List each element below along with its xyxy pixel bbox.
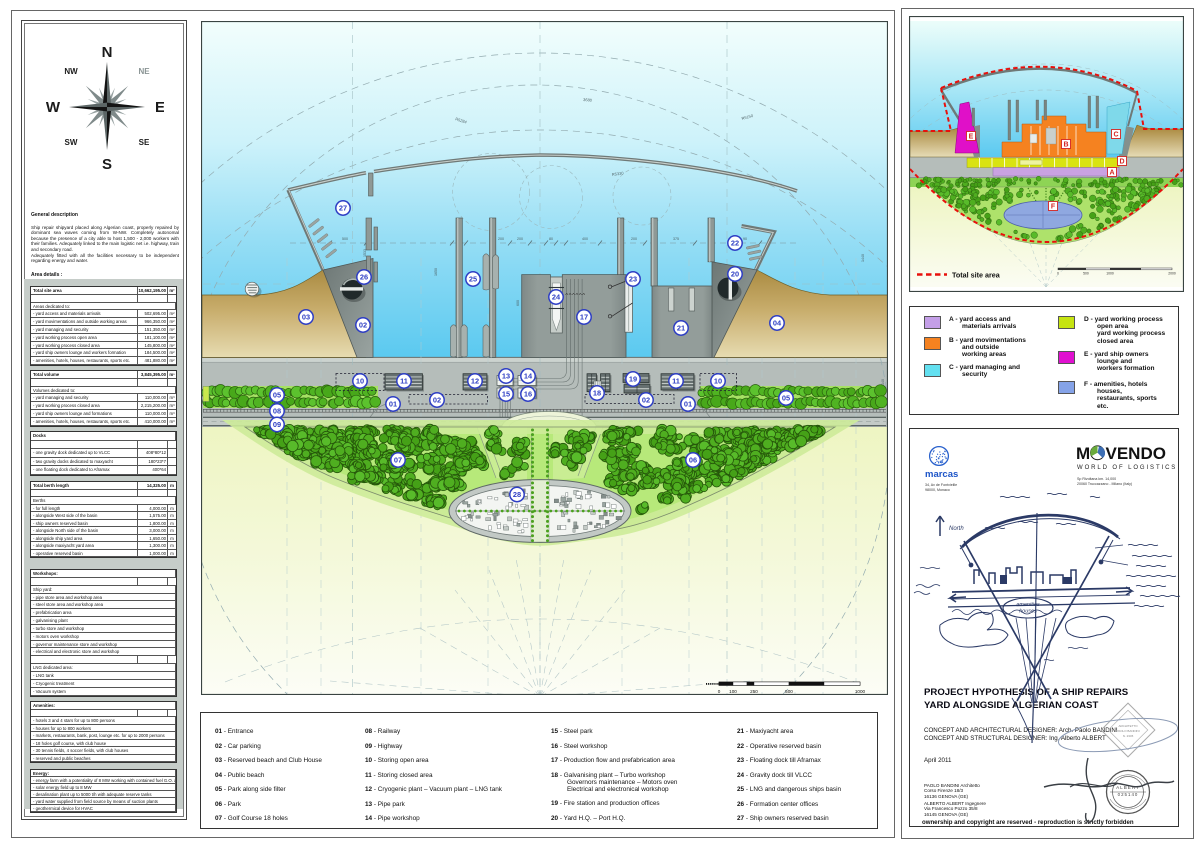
- svg-text:NW: NW: [64, 67, 78, 76]
- svg-text:amenities: amenities: [1016, 602, 1040, 608]
- svg-text:02: 02: [642, 396, 650, 405]
- svg-text:375: 375: [673, 237, 679, 241]
- svg-text:26: 26: [360, 273, 368, 282]
- svg-text:S: S: [102, 156, 112, 171]
- svg-text:1000: 1000: [1106, 272, 1114, 276]
- svg-text:1000: 1000: [855, 689, 866, 694]
- svg-text:24: 24: [552, 293, 561, 302]
- svg-text:3680: 3680: [583, 97, 593, 103]
- svg-text:23: 23: [629, 275, 637, 284]
- svg-text:B: B: [1063, 142, 1068, 149]
- svg-text:E: E: [155, 99, 164, 116]
- svg-text:06: 06: [689, 456, 697, 465]
- svg-text:10: 10: [356, 377, 364, 386]
- svg-text:28: 28: [513, 490, 521, 499]
- svg-text:07: 07: [394, 456, 402, 465]
- svg-text:025140: 025140: [1118, 792, 1139, 797]
- svg-text:04: 04: [773, 319, 782, 328]
- svg-text:D: D: [1119, 159, 1124, 166]
- svg-text:N: N: [102, 44, 113, 61]
- svg-text:1650: 1650: [434, 268, 438, 276]
- svg-text:200: 200: [631, 237, 637, 241]
- svg-text:0: 0: [718, 689, 721, 694]
- svg-text:1440: 1440: [861, 254, 865, 262]
- svg-text:10: 10: [714, 377, 722, 386]
- svg-text:Total site area: Total site area: [952, 271, 1001, 280]
- svg-text:W: W: [46, 99, 61, 116]
- svg-text:05: 05: [273, 391, 281, 400]
- svg-text:16: 16: [524, 390, 532, 399]
- svg-text:200: 200: [517, 237, 523, 241]
- svg-text:22: 22: [731, 239, 739, 248]
- svg-text:C: C: [1113, 132, 1118, 139]
- svg-text:11: 11: [672, 377, 680, 386]
- svg-text:F: F: [1051, 204, 1056, 211]
- svg-text:08: 08: [273, 407, 281, 416]
- svg-text:400: 400: [582, 237, 588, 241]
- svg-text:A: A: [1109, 170, 1114, 177]
- svg-text:80: 80: [549, 237, 553, 241]
- svg-text:12: 12: [471, 377, 479, 386]
- svg-text:18: 18: [593, 389, 601, 398]
- svg-text:01: 01: [684, 400, 692, 409]
- svg-text:0: 0: [1057, 272, 1059, 276]
- svg-text:houses: houses: [1019, 609, 1037, 615]
- svg-text:11: 11: [400, 377, 408, 386]
- svg-text:09: 09: [273, 420, 281, 429]
- svg-text:North: North: [949, 526, 964, 532]
- svg-text:19: 19: [629, 375, 637, 384]
- svg-text:600: 600: [516, 300, 520, 306]
- svg-text:250: 250: [750, 689, 758, 694]
- svg-text:90: 90: [743, 237, 747, 241]
- svg-text:27: 27: [339, 204, 347, 213]
- svg-text:SW: SW: [65, 138, 78, 147]
- svg-text:03: 03: [302, 313, 310, 322]
- svg-text:500: 500: [785, 689, 793, 694]
- svg-text:200: 200: [498, 237, 504, 241]
- svg-text:100: 100: [729, 689, 737, 694]
- svg-text:20: 20: [731, 270, 739, 279]
- svg-text:21: 21: [677, 324, 685, 333]
- svg-text:05: 05: [782, 394, 790, 403]
- svg-text:14: 14: [524, 372, 533, 381]
- svg-text:17: 17: [580, 313, 588, 322]
- svg-text:500: 500: [342, 237, 348, 241]
- svg-text:02: 02: [433, 396, 441, 405]
- svg-text:25: 25: [469, 275, 477, 284]
- svg-text:15: 15: [502, 390, 510, 399]
- svg-text:500: 500: [1083, 272, 1089, 276]
- svg-text:2000: 2000: [1168, 272, 1176, 276]
- svg-text:02: 02: [359, 321, 367, 330]
- svg-text:13: 13: [502, 372, 510, 381]
- svg-text:NE: NE: [138, 67, 150, 76]
- svg-text:01: 01: [389, 400, 397, 409]
- svg-text:SE: SE: [139, 138, 150, 147]
- svg-text:E: E: [969, 134, 974, 141]
